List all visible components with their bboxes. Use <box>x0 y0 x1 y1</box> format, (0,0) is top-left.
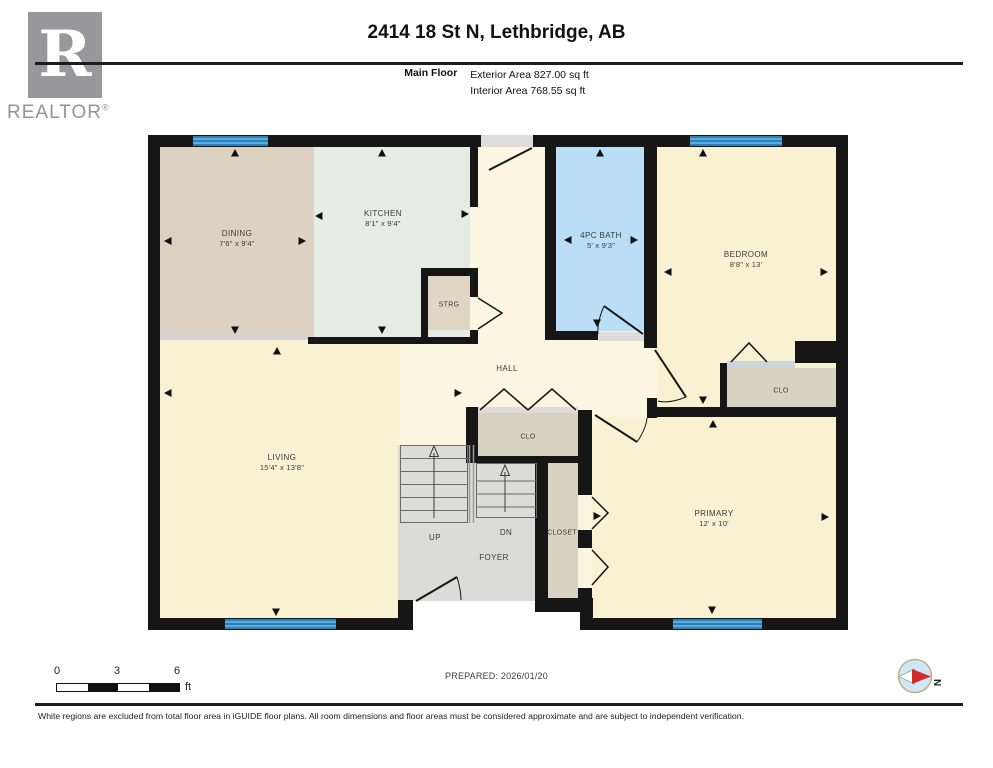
wall-segment <box>535 463 548 612</box>
scale-bar-segment <box>118 684 149 691</box>
wall-segment <box>578 463 592 495</box>
scale-bar <box>56 683 180 692</box>
scale-unit: ft <box>185 681 191 693</box>
wall-segment <box>720 363 727 415</box>
dining-label: DINING 7'6" x 9'4" <box>219 229 254 249</box>
stairs-up-label: UP <box>429 533 441 543</box>
wall-segment <box>580 598 593 630</box>
header-divider <box>35 62 963 65</box>
bath-door-threshold <box>598 332 645 341</box>
wall-segment <box>644 147 657 348</box>
dining-living-edge <box>158 333 310 340</box>
wall-segment <box>470 276 478 297</box>
wall-segment <box>466 456 592 463</box>
scale-bar-segment <box>88 684 119 691</box>
registered-trademark-icon: ® <box>102 103 110 113</box>
floor-plan-page: R REALTOR® 2414 18 St N, Lethbridge, AB … <box>0 0 993 768</box>
prepared-date: PREPARED: 2026/01/20 <box>0 671 993 681</box>
wall-segment <box>421 268 428 338</box>
bedroom-label: BEDROOM 8'8" x 13' <box>724 250 768 270</box>
disclaimer-text: White regions are excluded from total fl… <box>38 711 744 721</box>
scale-bar-segment <box>149 684 180 691</box>
hall-closet-track <box>478 407 578 413</box>
wall-segment <box>578 530 592 548</box>
wall-segment <box>795 341 836 363</box>
front-entry-step <box>481 135 533 147</box>
wall-segment <box>545 147 556 338</box>
floor-info: Main Floor Exterior Area 827.00 sq ft In… <box>0 67 993 99</box>
hall-label: HALL <box>496 364 518 374</box>
living-floor <box>158 340 400 618</box>
stairs-down-label: DN <box>500 528 512 538</box>
scale-bar-segment <box>57 684 88 691</box>
window-bedroom <box>690 136 782 146</box>
window-living <box>225 619 336 629</box>
window-dining <box>193 136 268 146</box>
wall-segment <box>836 135 848 630</box>
wall-segment <box>466 407 478 463</box>
wall-segment <box>647 407 836 417</box>
hall-closet-label: CLO <box>520 432 535 441</box>
bath-label: 4PC BATH 5' x 9'3" <box>580 231 622 251</box>
storage-label: STRG <box>439 300 460 309</box>
page-title: 2414 18 St N, Lethbridge, AB <box>0 22 993 44</box>
wall-segment <box>308 337 478 344</box>
primary-label: PRIMARY 12' x 10' <box>694 509 733 529</box>
wall-segment <box>545 331 598 340</box>
floor-areas: Exterior Area 827.00 sq ft Interior Area… <box>470 67 588 99</box>
kitchen-label: KITCHEN 8'1" x 9'4" <box>364 209 402 229</box>
exterior-area: Exterior Area 827.00 sq ft <box>470 67 588 83</box>
floor-label: Main Floor <box>404 67 457 99</box>
living-label: LIVING 15'4" x 13'8" <box>260 453 304 473</box>
wall-segment <box>470 147 478 207</box>
interior-area: Interior Area 768.55 sq ft <box>470 83 588 99</box>
wall-segment <box>421 268 478 276</box>
bedroom-closet-track <box>727 361 795 368</box>
bedroom-closet-label: CLO <box>773 386 788 395</box>
realtor-wordmark: REALTOR® <box>7 102 110 124</box>
foyer-label: FOYER <box>479 553 509 563</box>
wall-segment <box>148 135 160 630</box>
closet-label: CLOSET <box>547 528 577 537</box>
window-primary <box>673 619 762 629</box>
wall-segment <box>398 600 413 618</box>
stairs-foyer-floor <box>398 445 537 601</box>
footer-divider <box>35 703 963 706</box>
